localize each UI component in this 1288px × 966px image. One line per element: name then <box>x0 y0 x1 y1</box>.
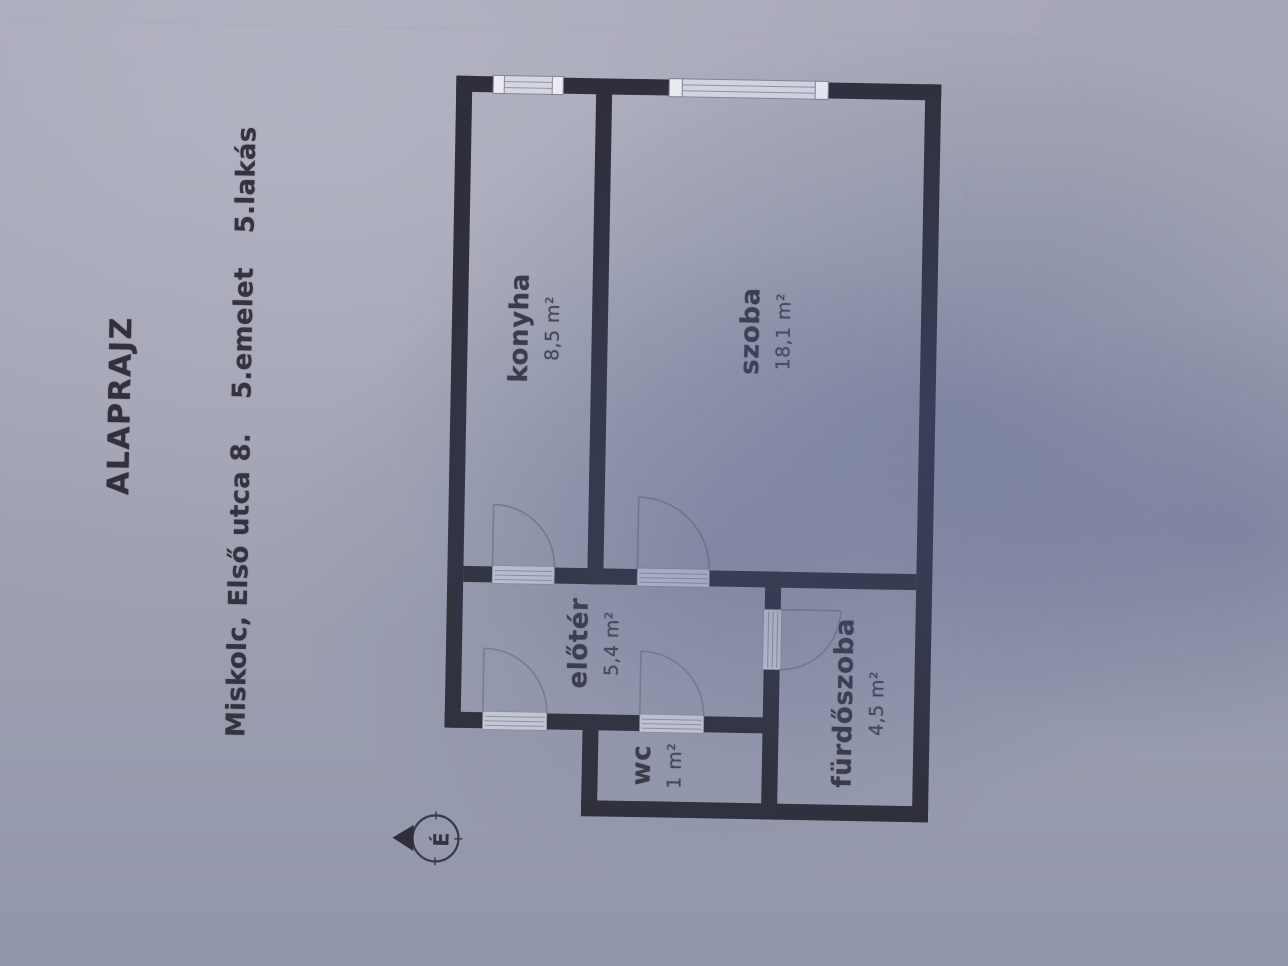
threshold-wc-door <box>639 714 703 733</box>
room-label-konyha: konyha 8,5 m² <box>504 273 566 384</box>
window-konyha-icon <box>493 75 563 94</box>
printed-sheet: ALAPRAJZ Miskolc, Első utca 8.5.emelet5.… <box>0 0 1288 966</box>
door-arc-szoba <box>637 497 710 570</box>
room-label-wc: wc 1 m² <box>626 742 687 789</box>
door-swings <box>483 494 843 718</box>
room-label-furdoszoba: fürdőszoba 4,5 m² <box>827 618 890 789</box>
room-area: 8,5 m² <box>540 273 566 383</box>
door-arc-wc <box>640 651 705 716</box>
room-label-eloter: előtér 5,4 m² <box>563 597 625 689</box>
threshold-konyha-door <box>492 565 554 584</box>
room-name: előtér <box>563 597 595 688</box>
door-arc-konyha <box>492 504 555 567</box>
outer-wall-bottom <box>581 800 928 822</box>
room-name: szoba <box>735 287 767 375</box>
room-name: fürdőszoba <box>827 618 860 788</box>
photo-of-floor-plan-sheet: ALAPRAJZ Miskolc, Első utca 8.5.emelet5.… <box>0 0 1288 966</box>
wall-konyha-szoba-divider <box>587 80 612 584</box>
threshold-furdoszoba-door <box>763 609 782 669</box>
door-arc-entrance <box>483 648 548 713</box>
window-szoba-icon <box>669 79 828 100</box>
room-area: 1 m² <box>662 743 687 789</box>
threshold-szoba-door <box>637 568 709 587</box>
door-thresholds <box>482 565 782 734</box>
floor-plan-drawing: É <box>0 0 1288 966</box>
room-area: 4,5 m² <box>863 618 890 788</box>
north-arrow: É <box>392 811 463 866</box>
room-name: wc <box>626 742 657 788</box>
outer-wall-right <box>912 84 942 822</box>
room-area: 5,4 m² <box>599 598 625 689</box>
room-area: 18,1 m² <box>771 288 797 376</box>
threshold-entrance-door <box>482 711 546 730</box>
wall-furdoszoba-divider <box>761 571 782 819</box>
north-label: É <box>428 832 453 847</box>
room-name: konyha <box>504 273 536 383</box>
paper-crease-lines <box>0 20 1288 866</box>
room-label-szoba: szoba 18,1 m² <box>735 287 797 376</box>
outer-wall-left <box>445 76 473 728</box>
north-triangle-icon <box>392 825 413 851</box>
